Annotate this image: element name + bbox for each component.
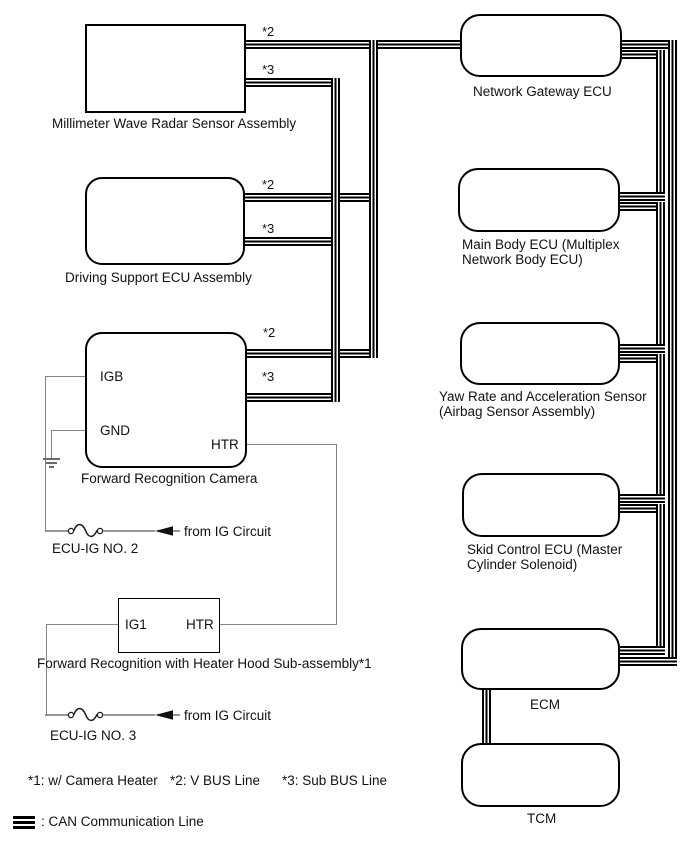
wire-htr-hood bbox=[220, 624, 337, 625]
can-bus-vbus-vertical bbox=[369, 40, 378, 358]
pin-htr-camera: HTR bbox=[211, 437, 239, 452]
pin-htr-hood: HTR bbox=[186, 617, 214, 632]
can-trunk-vertical bbox=[668, 40, 677, 666]
can-segment-skid-ecm bbox=[656, 504, 665, 655]
can-line-radar-subbus bbox=[246, 78, 340, 87]
footnote-v-bus: *2: V BUS Line bbox=[170, 773, 260, 788]
marker-vbus-camera: *2 bbox=[263, 326, 275, 340]
label-tcm: TCM bbox=[527, 811, 556, 826]
label-camera: Forward Recognition Camera bbox=[81, 471, 257, 486]
label-main-body: Main Body ECU (Multiplex Network Body EC… bbox=[462, 237, 642, 267]
can-segment-mainbody-yawrate bbox=[656, 202, 665, 353]
can-line-ecm-upper bbox=[620, 646, 665, 655]
can-line-camera-subbus bbox=[247, 393, 340, 402]
node-yaw-rate-box bbox=[460, 322, 620, 385]
marker-vbus-radar: *2 bbox=[262, 25, 274, 39]
ground-icon bbox=[49, 466, 54, 468]
can-line-driving-subbus bbox=[245, 237, 340, 246]
label-main-body-line1: Main Body ECU (Multiplex bbox=[462, 237, 620, 252]
can-line-driving-vbus bbox=[245, 193, 378, 202]
ground-icon bbox=[43, 458, 60, 460]
can-line-yawrate-upper bbox=[620, 344, 665, 353]
wire-gnd-stem bbox=[51, 430, 52, 458]
label-driving-support: Driving Support ECU Assembly bbox=[65, 270, 252, 285]
can-line-mainbody-upper bbox=[620, 192, 665, 201]
label-fuse-ecu-ig-no2: ECU-IG NO. 2 bbox=[52, 541, 138, 556]
marker-subbus-radar: *3 bbox=[262, 63, 274, 77]
node-skid-control-box bbox=[462, 473, 620, 537]
footnote-camera-heater: *1: w/ Camera Heater bbox=[28, 773, 158, 788]
wire-igb-horizontal bbox=[45, 376, 85, 377]
ground-icon bbox=[46, 462, 57, 464]
node-network-gateway-box bbox=[460, 14, 622, 77]
can-bus-subbus-vertical bbox=[331, 78, 340, 402]
can-segment-gateway-mainbody bbox=[656, 50, 665, 201]
can-line-legend-icon bbox=[13, 816, 35, 819]
node-ecm-box bbox=[461, 628, 620, 690]
wire-ig1-horizontal bbox=[47, 624, 118, 625]
label-yaw-rate-line2: (Airbag Sensor Assembly) bbox=[439, 404, 595, 419]
label-skid-control-line2: Cylinder Solenoid) bbox=[467, 557, 577, 572]
can-wiring-diagram: IGB GND HTR IG1 HTR *2 *3 *2 *3 *2 *3 Mi… bbox=[0, 0, 688, 852]
wire-igb-vertical bbox=[45, 376, 46, 531]
fuse-ecu-ig-no3-icon bbox=[40, 702, 185, 728]
label-yaw-rate-line1: Yaw Rate and Acceleration Sensor bbox=[439, 389, 647, 404]
wire-htr-vertical bbox=[336, 444, 337, 625]
can-line-radar-vbus bbox=[246, 40, 460, 49]
footnote-sub-bus: *3: Sub BUS Line bbox=[282, 773, 387, 788]
wire-htr-camera bbox=[247, 444, 337, 445]
node-radar-box bbox=[85, 24, 246, 113]
label-from-ig-circuit-3: from IG Circuit bbox=[184, 708, 271, 723]
can-line-ecm-tcm bbox=[482, 690, 491, 743]
label-heater-hood: Forward Recognition with Heater Hood Sub… bbox=[37, 656, 372, 671]
label-fuse-ecu-ig-no3: ECU-IG NO. 3 bbox=[50, 728, 136, 743]
can-line-camera-vbus bbox=[247, 349, 378, 358]
label-main-body-line2: Network Body ECU) bbox=[462, 252, 583, 267]
label-yaw-rate: Yaw Rate and Acceleration Sensor (Airbag… bbox=[439, 389, 669, 419]
wire-gnd-horizontal bbox=[51, 430, 85, 431]
label-radar: Millimeter Wave Radar Sensor Assembly bbox=[52, 116, 296, 131]
can-line-ecm-lower bbox=[620, 657, 677, 666]
pin-igb: IGB bbox=[100, 369, 123, 384]
label-skid-control-line1: Skid Control ECU (Master bbox=[467, 542, 622, 557]
node-driving-support-box bbox=[85, 177, 245, 265]
marker-subbus-camera: *3 bbox=[262, 370, 274, 384]
label-ecm: ECM bbox=[530, 697, 560, 712]
label-network-gateway: Network Gateway ECU bbox=[473, 84, 612, 99]
label-skid-control: Skid Control ECU (Master Cylinder Soleno… bbox=[467, 542, 647, 572]
can-line-legend-icon bbox=[13, 821, 35, 824]
pin-ig1: IG1 bbox=[125, 617, 147, 632]
marker-subbus-driving: *3 bbox=[262, 222, 274, 236]
legend-can-line-text: : CAN Communication Line bbox=[41, 814, 204, 829]
can-segment-yawrate-skid bbox=[656, 354, 665, 503]
node-main-body-box bbox=[458, 168, 620, 232]
pin-gnd: GND bbox=[100, 423, 130, 438]
node-tcm-box bbox=[461, 743, 620, 807]
label-from-ig-circuit-2: from IG Circuit bbox=[184, 524, 271, 539]
can-line-legend-icon bbox=[13, 826, 35, 829]
can-line-skid-upper bbox=[620, 494, 665, 503]
marker-vbus-driving: *2 bbox=[262, 178, 274, 192]
